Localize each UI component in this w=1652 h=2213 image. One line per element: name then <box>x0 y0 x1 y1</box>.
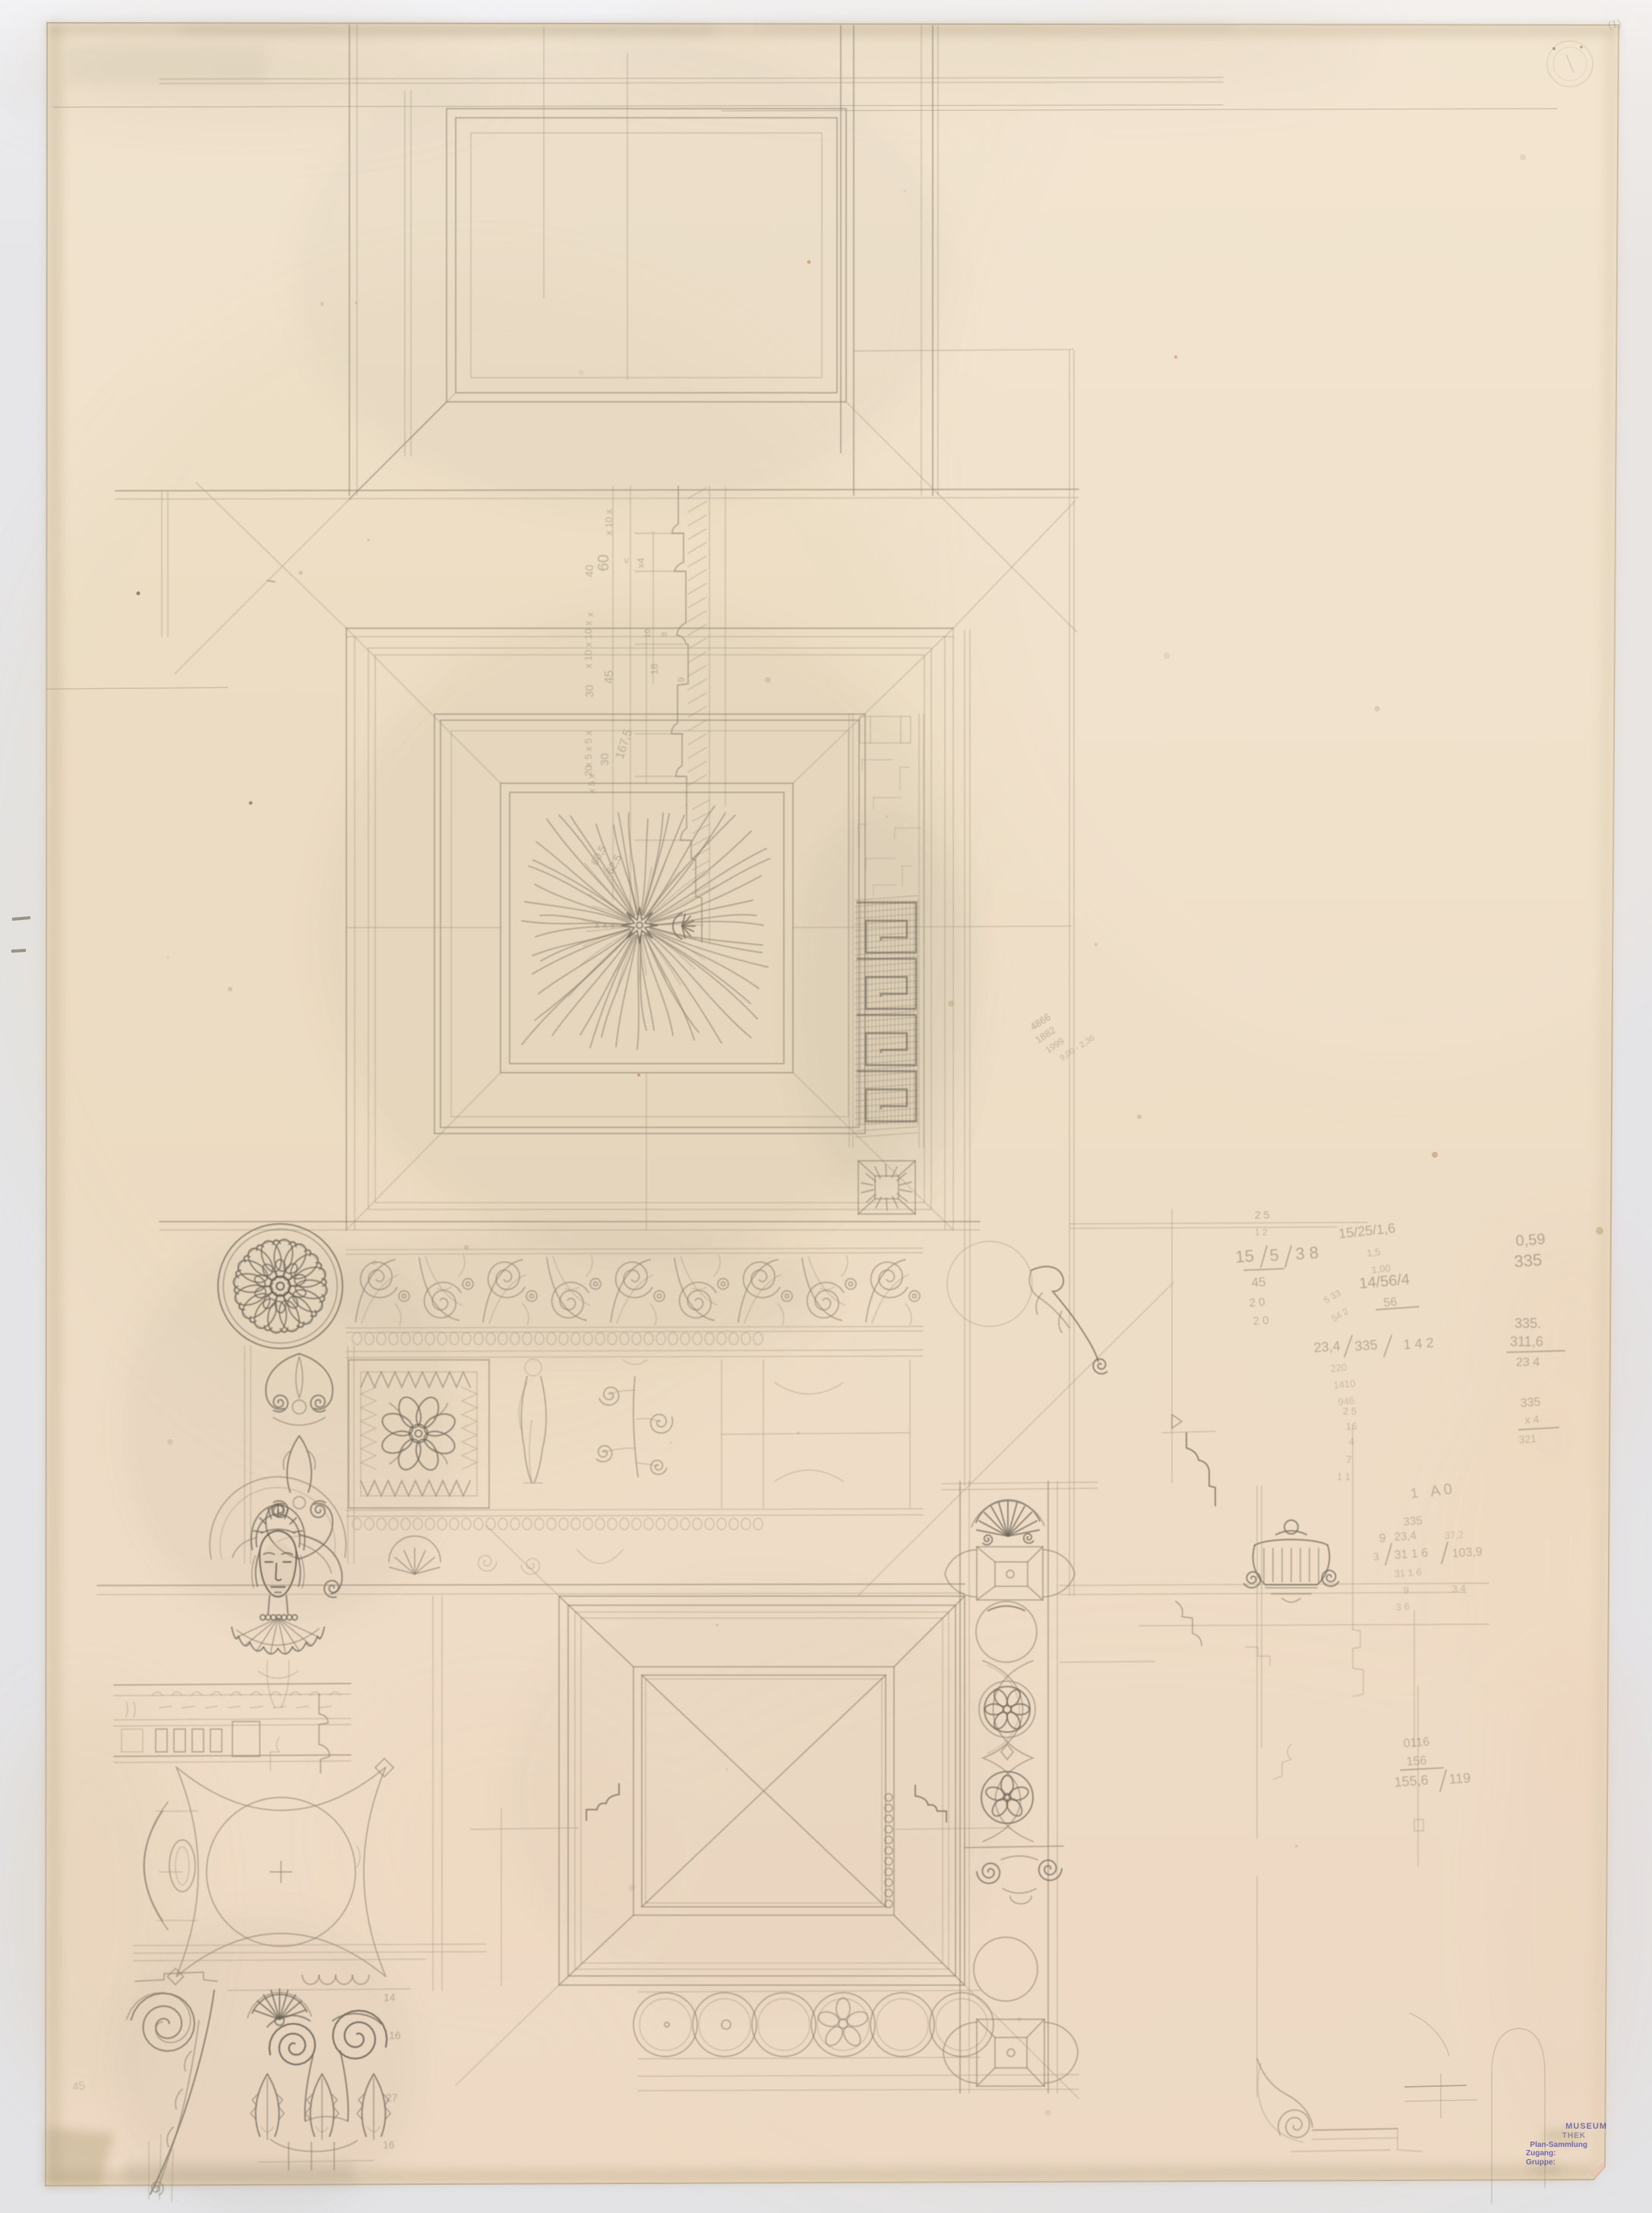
svg-text:<: < <box>621 558 632 564</box>
svg-text:1 4 2: 1 4 2 <box>1403 1335 1434 1352</box>
svg-text:(1): (1) <box>1607 17 1622 31</box>
svg-text:335: 335 <box>1354 1337 1378 1354</box>
svg-text:1,5: 1,5 <box>1366 1246 1382 1259</box>
svg-text:0116: 0116 <box>1403 1736 1430 1750</box>
svg-text:31 1 6: 31 1 6 <box>1394 1547 1429 1562</box>
svg-text:5: 5 <box>1269 1245 1280 1265</box>
svg-text:MUSEUM: MUSEUM <box>1565 2122 1607 2131</box>
svg-text:2 0: 2 0 <box>1249 1296 1265 1310</box>
svg-text:321: 321 <box>1518 1432 1537 1446</box>
svg-text:x 10 x: x 10 x <box>603 509 614 536</box>
svg-text:156: 156 <box>1406 1754 1427 1769</box>
svg-text:3 8: 3 8 <box>1295 1243 1319 1263</box>
svg-text:x4: x4 <box>635 558 646 568</box>
svg-text:335.: 335. <box>1515 1316 1541 1331</box>
svg-text:9: 9 <box>1379 1532 1386 1545</box>
svg-text:103,9: 103,9 <box>1451 1545 1483 1560</box>
svg-text:16: 16 <box>383 2139 395 2151</box>
svg-text:40: 40 <box>583 564 596 577</box>
svg-text:45: 45 <box>1251 1275 1266 1290</box>
svg-text:56: 56 <box>1383 1295 1398 1309</box>
svg-text:335: 335 <box>1514 1250 1543 1271</box>
svg-text:7: 7 <box>1346 1453 1352 1465</box>
svg-text:2 5: 2 5 <box>1343 1405 1357 1417</box>
svg-text:45: 45 <box>71 2079 86 2094</box>
svg-text:18: 18 <box>649 664 660 675</box>
svg-text:335: 335 <box>1403 1514 1423 1529</box>
svg-text:3 4: 3 4 <box>1451 1582 1466 1595</box>
svg-text:16: 16 <box>389 2029 401 2041</box>
svg-text:14: 14 <box>384 1991 396 2003</box>
svg-text:3 6: 3 6 <box>1395 1601 1410 1613</box>
svg-text:3: 3 <box>1372 1550 1379 1563</box>
svg-text:x 5 x 5 x: x 5 x 5 x <box>583 730 594 767</box>
svg-text:119: 119 <box>1448 1770 1471 1787</box>
svg-text:9: 9 <box>676 677 687 682</box>
svg-text:30: 30 <box>583 684 596 697</box>
svg-text:x 10 x 10 x: x 10 x 10 x <box>583 621 594 669</box>
svg-text:30: 30 <box>599 753 611 766</box>
svg-text:23 4: 23 4 <box>1516 1356 1540 1369</box>
svg-text:335: 335 <box>1520 1396 1541 1410</box>
svg-text:15: 15 <box>1235 1246 1255 1266</box>
svg-text:16: 16 <box>1346 1421 1357 1432</box>
svg-text:27: 27 <box>386 2091 398 2104</box>
svg-text:23,4: 23,4 <box>1394 1529 1417 1544</box>
svg-text:31 1 6: 31 1 6 <box>1394 1566 1422 1579</box>
svg-text:x: x <box>585 612 595 617</box>
svg-text:A 0: A 0 <box>1429 1481 1454 1500</box>
svg-text:0,59: 0,59 <box>1515 1231 1546 1250</box>
svg-text:37,2: 37,2 <box>1444 1529 1464 1541</box>
svg-text:1410: 1410 <box>1333 1377 1356 1391</box>
svg-text:9: 9 <box>1403 1585 1409 1596</box>
svg-text:2 0: 2 0 <box>1252 1314 1269 1328</box>
svg-text:23,4: 23,4 <box>1313 1339 1341 1355</box>
svg-text:60: 60 <box>595 555 612 571</box>
svg-text:220: 220 <box>1330 1361 1347 1374</box>
svg-text:1 2: 1 2 <box>1255 1227 1268 1238</box>
svg-text:155,6: 155,6 <box>1394 1772 1429 1790</box>
svg-text:1 1: 1 1 <box>1337 1471 1350 1482</box>
svg-text:2 5: 2 5 <box>1255 1209 1270 1221</box>
svg-text:311,6: 311,6 <box>1510 1334 1543 1349</box>
svg-text:45: 45 <box>603 670 616 684</box>
svg-text:Zugang:: Zugang: <box>1526 2149 1556 2158</box>
svg-text:8: 8 <box>660 632 669 637</box>
svg-text:4: 4 <box>1349 1436 1354 1447</box>
svg-text:x 4: x 4 <box>1524 1413 1540 1426</box>
